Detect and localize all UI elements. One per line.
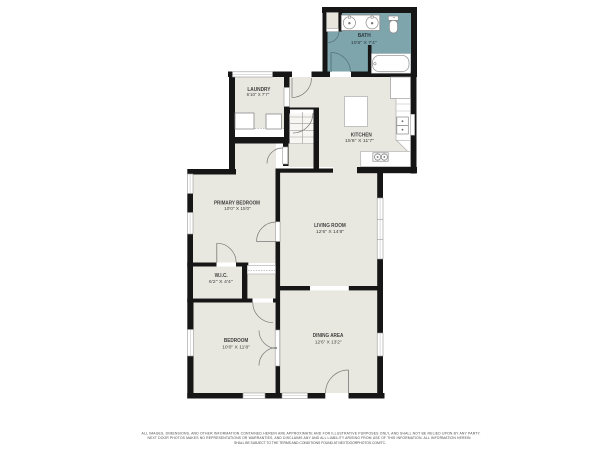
svg-text:ALL IMAGES, DIMENSIONS, AND OT: ALL IMAGES, DIMENSIONS, AND OTHER INFORM… xyxy=(141,432,480,436)
svg-text:10'0" X 15'0": 10'0" X 15'0" xyxy=(224,206,251,211)
svg-text:DINING AREA: DINING AREA xyxy=(313,333,344,339)
svg-text:12'6" X 13'2": 12'6" X 13'2" xyxy=(315,339,342,344)
svg-text:6'2" X 4'4": 6'2" X 4'4" xyxy=(209,279,233,284)
svg-text:NEXT DOOR PHOTOS MAKES NO REPR: NEXT DOOR PHOTOS MAKES NO REPRESENTATION… xyxy=(148,436,472,440)
svg-text:10'6" X 7'4": 10'6" X 7'4" xyxy=(351,40,377,45)
svg-text:BEDROOM: BEDROOM xyxy=(224,338,249,344)
svg-text:SHALL BE SUBJECT TO THE TERMS: SHALL BE SUBJECT TO THE TERMS AND CONDIT… xyxy=(234,441,386,445)
svg-text:12'6" X 14'8": 12'6" X 14'8" xyxy=(316,229,345,234)
svg-text:10'0" X 11'8": 10'0" X 11'8" xyxy=(222,345,250,350)
svg-text:15'6" X 11'7": 15'6" X 11'7" xyxy=(345,138,375,143)
svg-text:BATH: BATH xyxy=(358,33,371,39)
svg-text:LIVING ROOM: LIVING ROOM xyxy=(314,223,346,229)
svg-text:6'10" X 7'7": 6'10" X 7'7" xyxy=(247,92,270,97)
